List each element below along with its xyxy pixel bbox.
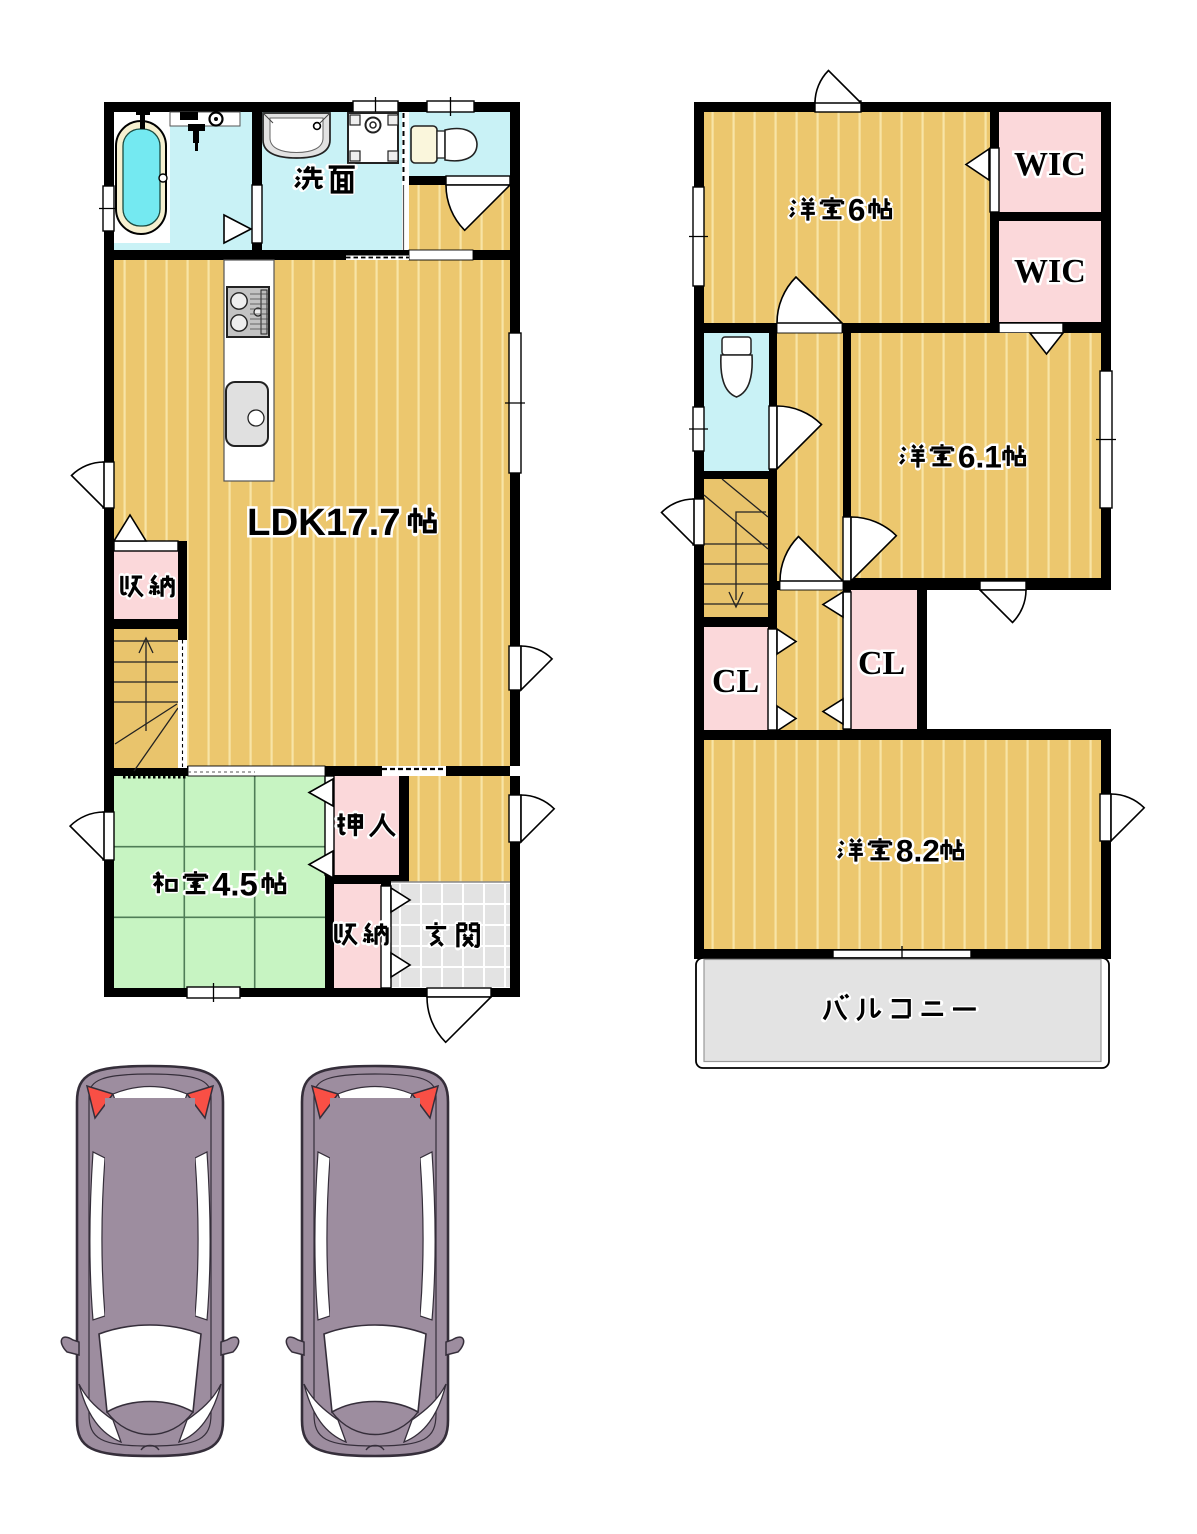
svg-text:8.2: 8.2 bbox=[896, 833, 940, 869]
svg-text:6.1: 6.1 bbox=[958, 439, 1002, 475]
svg-text:WIC: WIC bbox=[1014, 253, 1086, 290]
svg-text:6: 6 bbox=[848, 192, 866, 228]
svg-text:CL: CL bbox=[712, 663, 759, 700]
svg-text:CL: CL bbox=[858, 645, 905, 682]
svg-text:LDK17.7: LDK17.7 bbox=[247, 501, 401, 544]
svg-text:WIC: WIC bbox=[1014, 146, 1086, 183]
svg-text:4.5: 4.5 bbox=[212, 866, 258, 903]
